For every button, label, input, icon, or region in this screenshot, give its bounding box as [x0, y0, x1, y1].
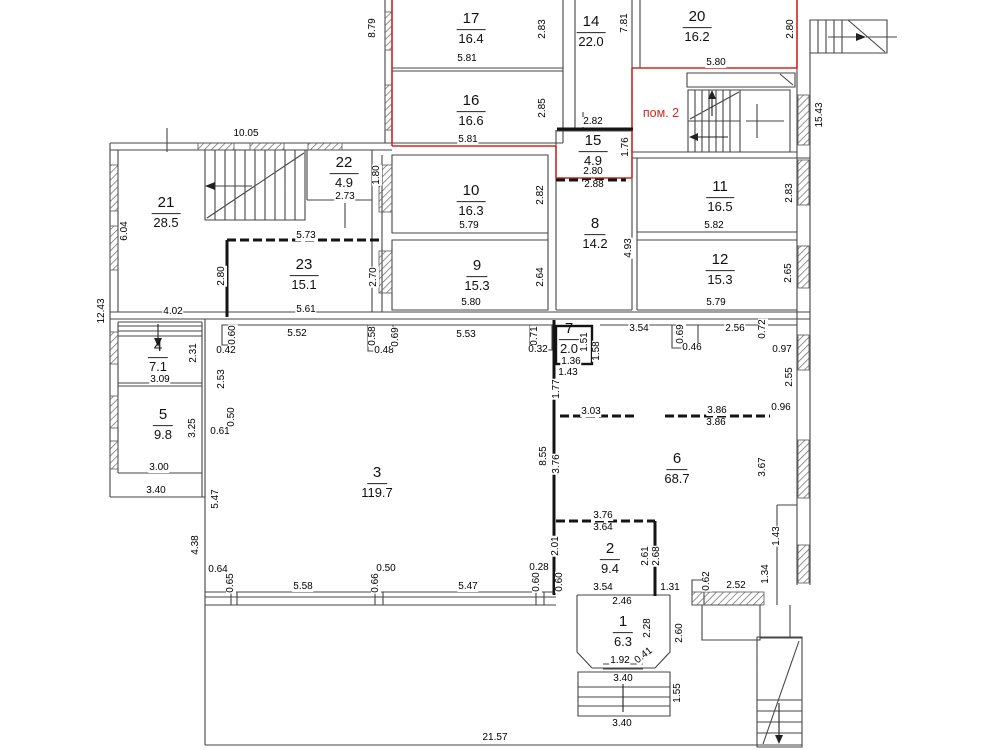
dimension-label: 3.54 — [592, 583, 613, 593]
room-number: 11 — [706, 179, 734, 198]
dimension-label: 3.86 — [705, 418, 726, 428]
room-area: 7.1 — [149, 358, 167, 375]
dimension-label: 0.97 — [771, 345, 792, 355]
room-label: 16.3 — [613, 614, 633, 650]
dimension-label: 7.81 — [620, 12, 630, 33]
room-label: 59.8 — [153, 407, 173, 443]
room-label: 2315.1 — [290, 257, 319, 293]
stair-left-arrow-icon — [205, 182, 215, 190]
dimension-label: 5.79 — [458, 221, 479, 231]
dimension-label: 0.62 — [702, 570, 712, 591]
dimension-label: 2.80 — [217, 265, 227, 286]
dimension-label: 2.88 — [583, 180, 604, 190]
room-area: 68.7 — [664, 470, 689, 487]
dimension-label: 6.04 — [120, 220, 130, 241]
room-label: 1016.3 — [457, 183, 486, 219]
dimension-label: 4.93 — [624, 237, 634, 258]
room-number: 10 — [457, 183, 486, 202]
dimension-label: 2.46 — [611, 597, 632, 607]
walls-thick-solid — [227, 129, 655, 596]
room-number: 5 — [153, 407, 173, 426]
dimension-label: 1.55 — [673, 682, 683, 703]
room-area: 9.8 — [154, 426, 172, 443]
dimension-label: 2.52 — [725, 581, 746, 591]
dimension-label: 3.86 — [706, 406, 727, 416]
room-area: 4.9 — [335, 174, 353, 191]
dimension-label: 2.68 — [652, 545, 662, 566]
room-area: 16.6 — [458, 112, 483, 129]
dimension-label: 0.60 — [555, 571, 565, 592]
room-label: 814.2 — [582, 216, 607, 252]
dimension-label: 5.82 — [703, 221, 724, 231]
dimension-label: 1.34 — [761, 563, 771, 584]
dimension-label: 3.03 — [580, 407, 601, 417]
room-area: 15.1 — [291, 276, 316, 293]
room-number: 8 — [585, 216, 605, 235]
dimension-label: 0.42 — [215, 346, 236, 356]
dimension-label: 2.80 — [582, 167, 603, 177]
room-number: 3 — [367, 465, 387, 484]
dimension-label: 2.65 — [784, 262, 794, 283]
room-number: 12 — [706, 252, 735, 271]
dimension-label: 3.00 — [148, 463, 169, 473]
dimension-label: 5.81 — [457, 135, 478, 145]
room-label: 47.1 — [148, 339, 168, 375]
dimension-label: 5.52 — [286, 329, 307, 339]
room-label: 668.7 — [664, 451, 689, 487]
dimension-label: 2.83 — [785, 182, 795, 203]
dimension-label: 0.72 — [758, 318, 768, 339]
dimension-label: 0.60 — [532, 571, 542, 592]
dimension-label: 2.85 — [538, 97, 548, 118]
room-number: 15 — [579, 133, 608, 152]
dimension-label: 1.43 — [557, 368, 578, 378]
dimension-label: 0.58 — [368, 325, 378, 346]
dimension-label: 2.70 — [369, 266, 379, 287]
dimension-label: 2.64 — [536, 266, 546, 287]
room-label: 2016.2 — [683, 9, 712, 45]
room-number: 20 — [683, 9, 712, 28]
dimension-label: 1.36 — [560, 357, 581, 367]
dimension-label: 1.77 — [552, 378, 562, 399]
room-number: 16 — [457, 93, 486, 112]
room-number: 17 — [457, 11, 486, 30]
dimension-label: 3.76 — [592, 511, 613, 521]
room-label: 1116.5 — [706, 179, 734, 215]
dimension-label: 3.67 — [758, 456, 768, 477]
room-area: 16.5 — [707, 198, 732, 215]
dimension-label: 2.01 — [551, 535, 561, 556]
dimension-label: 2.80 — [786, 18, 796, 39]
room-number: 4 — [148, 339, 168, 358]
dimension-label: 2.82 — [536, 184, 546, 205]
room-area: 16.2 — [684, 28, 709, 45]
dimension-label: 8.79 — [368, 17, 378, 38]
room-label: 29.4 — [600, 541, 620, 577]
room-number: 21 — [152, 195, 181, 214]
dimension-label: 1.43 — [772, 525, 782, 546]
dimension-label: 3.40 — [612, 674, 633, 684]
room-number: 22 — [330, 155, 359, 174]
dimension-label: 4.38 — [191, 534, 201, 555]
dimension-label: 2.83 — [538, 18, 548, 39]
dimension-label: 3.54 — [628, 324, 649, 334]
dimension-label: 4.02 — [162, 307, 183, 317]
dimension-label: 3.40 — [611, 719, 632, 729]
dimension-label: 5.73 — [295, 231, 316, 241]
dimension-label: 1.51 — [580, 331, 590, 352]
floorplan-canvas: пом. 2 1716.41616.61422.02016.2154.92128… — [0, 0, 1000, 750]
dimension-label: 8.55 — [539, 445, 549, 466]
dimension-label: 3.25 — [188, 417, 198, 438]
dimension-label: 1.31 — [659, 583, 680, 593]
dimension-label: 3.76 — [552, 453, 562, 474]
dimension-label: 5.58 — [292, 582, 313, 592]
room-area: 9.4 — [601, 560, 619, 577]
dimension-label: 5.53 — [455, 330, 476, 340]
dimension-label: 2.31 — [189, 342, 199, 363]
dimension-label: 1.80 — [372, 164, 382, 185]
room-area: 28.5 — [153, 214, 178, 231]
dimension-label: 2.56 — [724, 324, 745, 334]
room-area: 16.4 — [458, 30, 483, 47]
dimension-label: 0.50 — [227, 406, 237, 427]
unit-label: пом. 2 — [643, 106, 679, 120]
dimension-label: 5.80 — [705, 58, 726, 68]
dimension-label: 0.69 — [391, 326, 401, 347]
stair-bottomright-down-arrow-icon — [775, 735, 783, 744]
dimension-label: 1.76 — [621, 136, 631, 157]
room-label: 1716.4 — [457, 11, 486, 47]
room-area: 15.3 — [707, 271, 732, 288]
dimension-label: 2.73 — [334, 192, 355, 202]
room-area: 16.3 — [458, 202, 483, 219]
dimension-label: 10.05 — [232, 129, 259, 139]
room-label: 72.0 — [559, 321, 579, 357]
room-area: 22.0 — [578, 33, 603, 50]
room-number: 23 — [290, 257, 319, 276]
dimension-label: 2.28 — [643, 617, 653, 638]
room-label: 1422.0 — [577, 14, 606, 50]
room-area: 119.7 — [361, 484, 393, 501]
room-area: 6.3 — [614, 633, 632, 650]
dimension-label: 0.96 — [770, 403, 791, 413]
dimension-label: 5.47 — [457, 582, 478, 592]
dimension-label: 0.61 — [209, 427, 230, 437]
room-number: 7 — [559, 321, 579, 340]
dimension-label: 21.57 — [481, 733, 508, 743]
dimension-label: 0.60 — [228, 324, 238, 345]
dimension-label: 5.81 — [456, 54, 477, 64]
walls-thin — [110, 0, 897, 747]
room-number: 9 — [467, 258, 487, 277]
dimension-label: 15.43 — [815, 101, 825, 128]
dimension-label: 0.66 — [371, 572, 381, 593]
dimension-label: 0.32 — [527, 345, 548, 355]
room-number: 14 — [577, 14, 606, 33]
room-label: 1616.6 — [457, 93, 486, 129]
dimension-label: 12.43 — [97, 297, 107, 324]
room-label: 1215.3 — [706, 252, 735, 288]
dimension-label: 0.46 — [681, 343, 702, 353]
dimension-label: 0.65 — [226, 572, 236, 593]
room-number: 1 — [613, 614, 633, 633]
room-area: 14.2 — [582, 235, 607, 252]
room-label: 224.9 — [330, 155, 359, 191]
dimension-label: 5.80 — [460, 298, 481, 308]
dimension-label: 1.58 — [592, 340, 602, 361]
room-area: 15.3 — [464, 277, 489, 294]
dimension-label: 5.79 — [705, 298, 726, 308]
dimension-label: 5.61 — [295, 305, 316, 315]
room-label: 3119.7 — [361, 465, 393, 501]
dimension-label: 3.64 — [592, 523, 613, 533]
dimension-label: 2.60 — [675, 622, 685, 643]
room-number: 2 — [600, 541, 620, 560]
dimension-label: 2.61 — [641, 545, 651, 566]
room-area: 2.0 — [560, 340, 578, 357]
room-label: 2128.5 — [152, 195, 181, 231]
dimension-label: 3.40 — [145, 486, 166, 496]
dimension-label: 2.53 — [217, 368, 227, 389]
room-label: 915.3 — [464, 258, 489, 294]
dimension-label: 2.55 — [785, 366, 795, 387]
dimension-label: 1.92 — [609, 656, 630, 666]
dimension-label: 2.82 — [582, 117, 603, 127]
dimension-label: 3.09 — [149, 375, 170, 385]
room-label: 154.9 — [579, 133, 608, 169]
room-number: 6 — [667, 451, 687, 470]
dimension-label: 5.47 — [211, 488, 221, 509]
